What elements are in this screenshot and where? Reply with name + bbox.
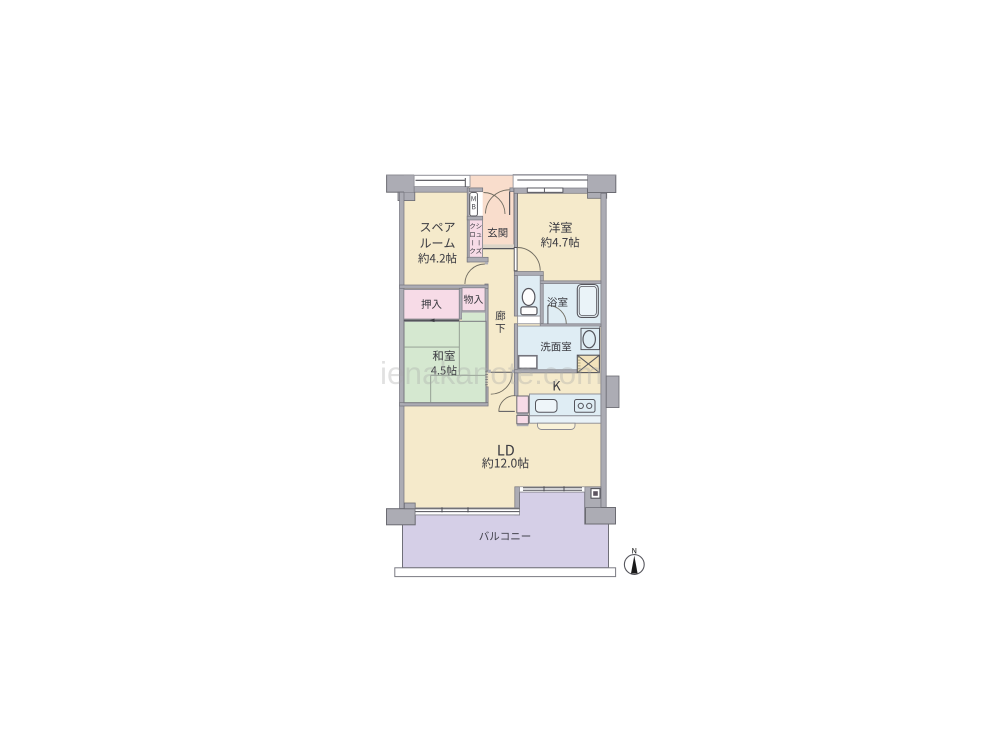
- svg-text:ienakanote.com: ienakanote.com: [380, 355, 602, 391]
